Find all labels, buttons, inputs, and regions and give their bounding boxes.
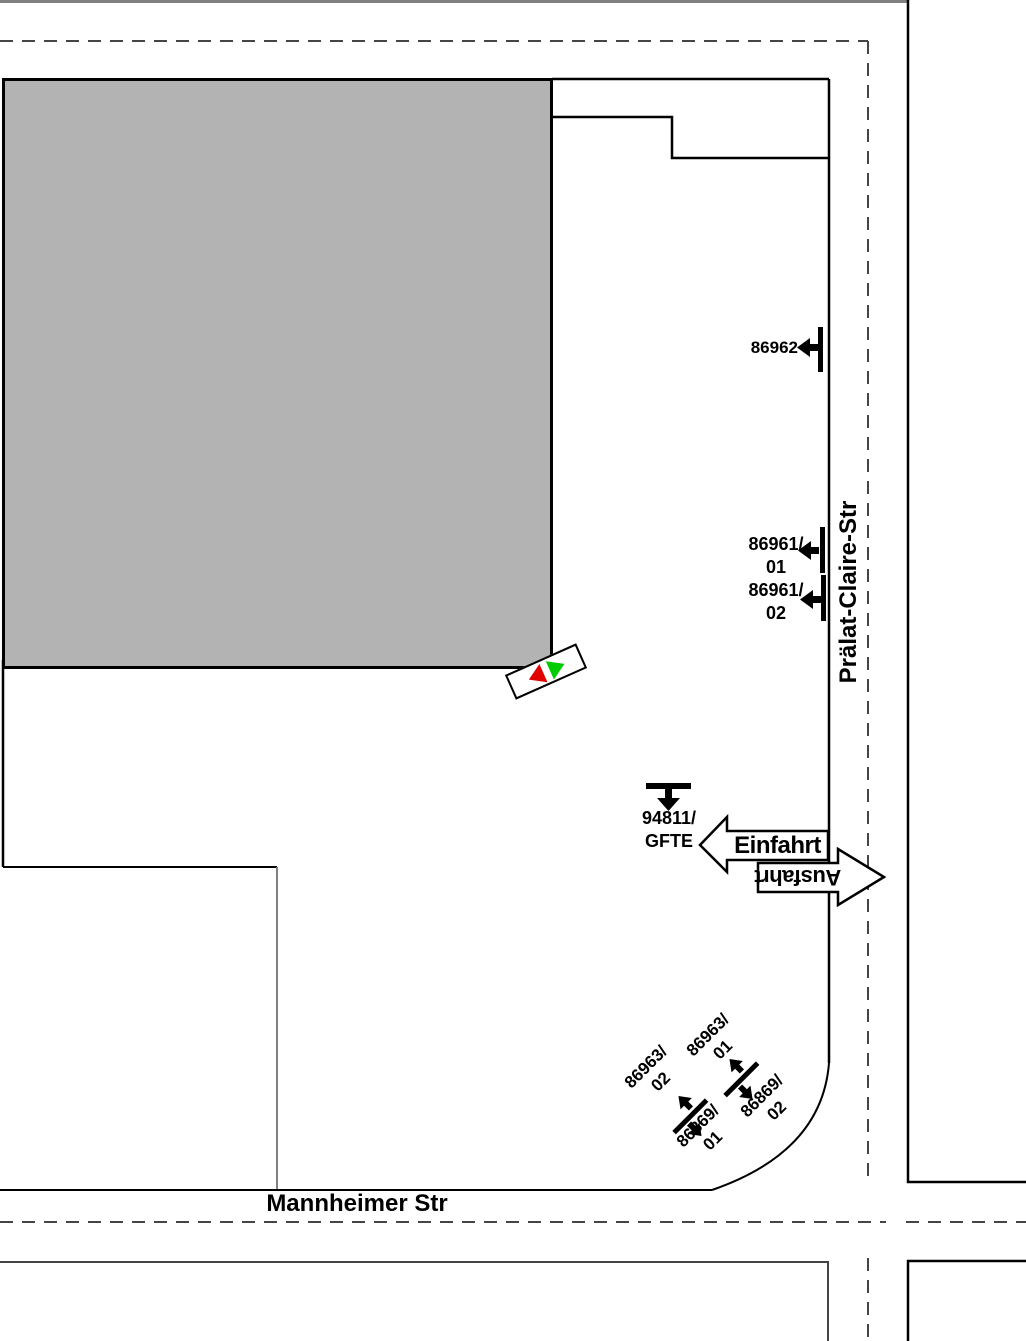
street-label-pralat-claire: Prälat-Claire-Str xyxy=(834,482,864,702)
billboard-94811-label: 94811/ GFTE xyxy=(619,807,719,853)
billboard-86961-02-label: 86961/ 02 xyxy=(736,579,816,625)
street-label-mannheimer: Mannheimer Str xyxy=(237,1190,477,1218)
exit-arrow-label: Ausfahrt xyxy=(758,862,838,893)
signal-green-triangle-icon xyxy=(545,654,568,679)
billboard-86961-01-label: 86961/ 01 xyxy=(736,533,816,579)
billboard-86962-label: 86962 xyxy=(720,336,798,359)
entry-arrow-label: Einfahrt xyxy=(727,830,828,861)
site-plan: 86962 86961/ 01 86961/ 02 94811/ GFTE Ei… xyxy=(0,0,1026,1341)
signal-red-triangle-icon xyxy=(524,664,547,689)
